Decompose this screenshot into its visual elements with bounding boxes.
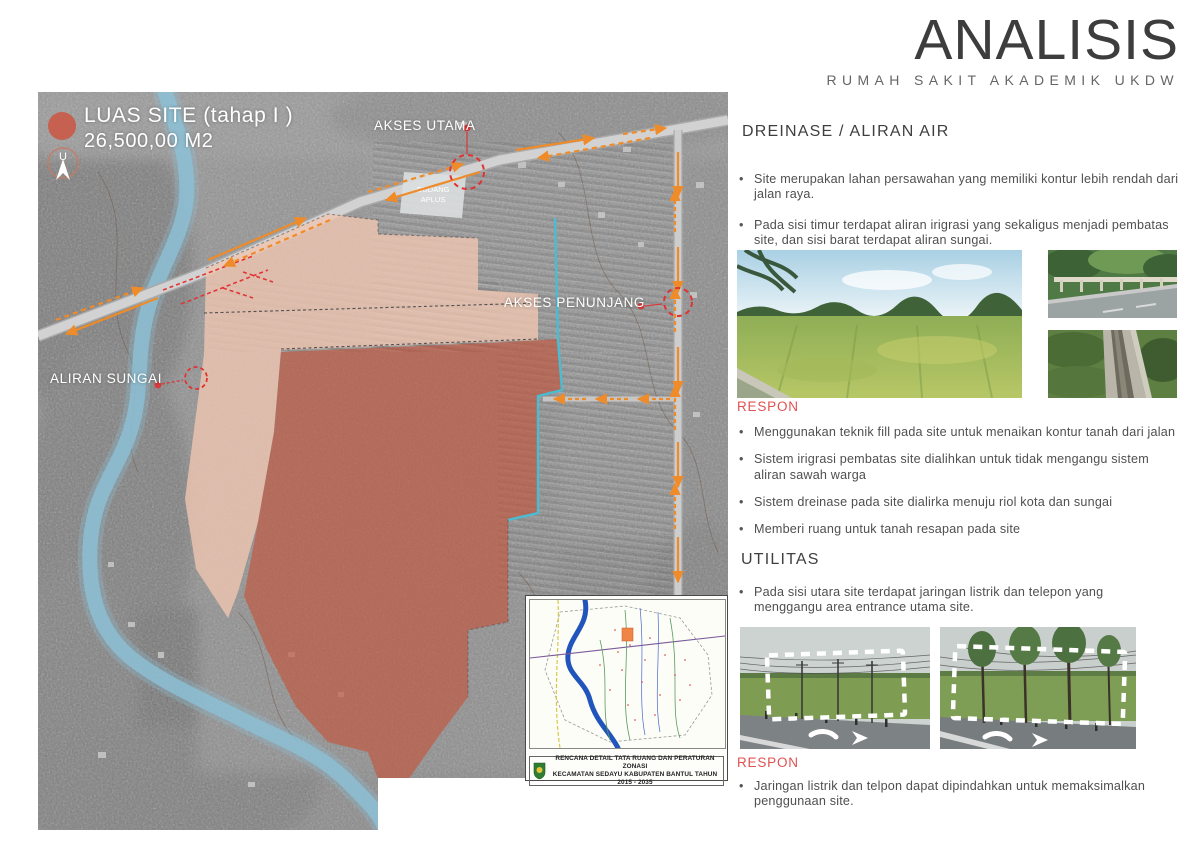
- photo-irrigation-channel: [1048, 330, 1177, 398]
- legend-title: LUAS SITE (tahap I ): [84, 104, 293, 128]
- list-item: Sistem irigrasi pembatas site dialihkan …: [737, 452, 1182, 483]
- heading-respon-1: RESPON: [737, 399, 799, 414]
- list-item: Menggunakan teknik fill pada site untuk …: [737, 425, 1182, 440]
- list-item: Site merupakan lahan persawahan yang mem…: [737, 172, 1182, 203]
- legend-area: 26,500,00 M2: [84, 130, 214, 153]
- inset-caption: RENCANA DETAIL TATA RUANG DAN PERATURAN …: [529, 756, 724, 786]
- list-item: Jaringan listrik dan telpon dapat dipind…: [737, 779, 1182, 810]
- heading-utilitas: UTILITAS: [741, 551, 820, 569]
- inset-caption-line1: RENCANA DETAIL TATA RUANG DAN PERATURAN …: [550, 755, 720, 771]
- gudang-label-2: APLUS: [421, 195, 446, 204]
- photo-street-powerlines-1: [740, 627, 930, 749]
- page-title: ANALISIS: [826, 12, 1179, 69]
- label-akses-penunjang: AKSES PENUNJANG: [504, 295, 645, 310]
- heading-respon-2: RESPON: [737, 755, 799, 770]
- photo-street-powerlines-2: [940, 627, 1136, 749]
- label-akses-utama: AKSES UTAMA: [374, 118, 476, 133]
- list-item: Memberi ruang untuk tanah resapan pada s…: [737, 522, 1182, 537]
- heading-dreinase: DREINASE / ALIRAN AIR: [742, 123, 949, 141]
- label-aliran-sungai: ALIRAN SUNGAI: [50, 371, 162, 386]
- legend-dot: [48, 112, 76, 140]
- inset-zoning-map: RENCANA DETAIL TATA RUANG DAN PERATURAN …: [525, 595, 728, 781]
- site-map: GUDANG APLUS: [38, 92, 728, 830]
- analysis-board: ANALISIS RUMAH SAKIT AKADEMIK UKDW: [0, 0, 1191, 842]
- inset-caption-line2: KECAMATAN SEDAYU KABUPATEN BANTUL TAHUN …: [550, 771, 720, 787]
- list-item: Pada sisi timur terdapat aliran irigrasi…: [737, 218, 1182, 249]
- inset-site-marker: [622, 628, 633, 641]
- list-item: Sistem dreinase pada site dialirka menuj…: [737, 495, 1182, 510]
- regency-crest-icon: [533, 762, 546, 780]
- list-item: Pada sisi utara site terdapat jaringan l…: [737, 585, 1157, 616]
- respon1-list: Menggunakan teknik fill pada site untuk …: [737, 425, 1182, 550]
- photo-bridge-road: [1048, 250, 1177, 318]
- inset-map-graphic: [529, 599, 726, 749]
- utilitas-list: Pada sisi utara site terdapat jaringan l…: [737, 585, 1157, 629]
- header: ANALISIS RUMAH SAKIT AKADEMIK UKDW: [826, 12, 1179, 88]
- page-subtitle: RUMAH SAKIT AKADEMIK UKDW: [826, 72, 1179, 88]
- photo-rice-field: [737, 250, 1022, 398]
- respon2-list: Jaringan listrik dan telpon dapat dipind…: [737, 779, 1182, 823]
